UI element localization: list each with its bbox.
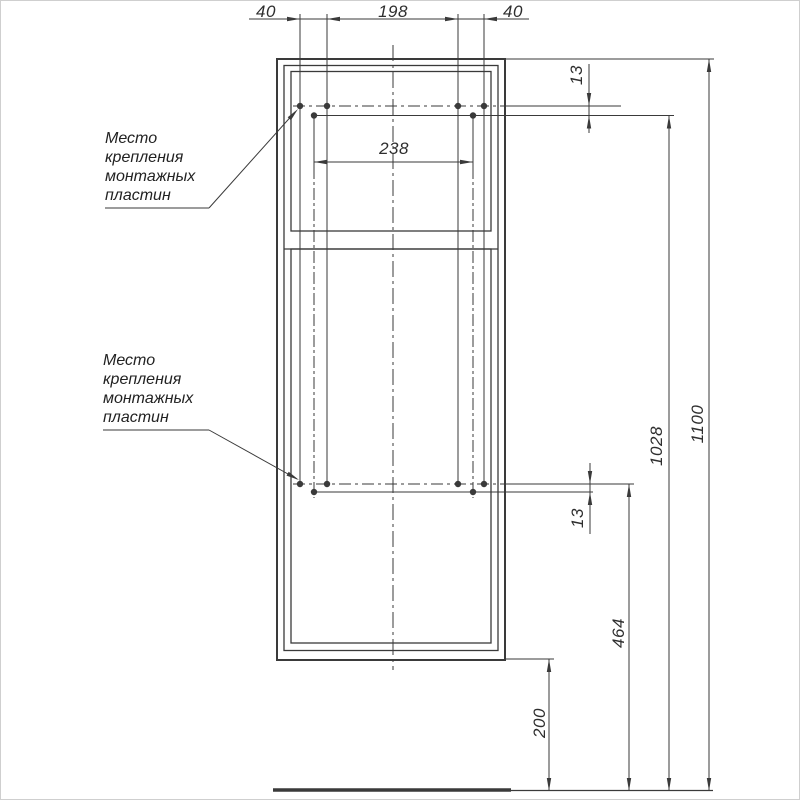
note-line: крепления xyxy=(105,148,195,167)
note-mounting-plates-top: Место крепления монтажных пластин xyxy=(105,129,195,205)
note-line: монтажных xyxy=(103,389,193,408)
plate-span-dimension xyxy=(314,116,473,499)
note-line: Место xyxy=(103,351,193,370)
dim-label-40-right: 40 xyxy=(491,2,535,22)
dim-label-13-bottom: 13 xyxy=(568,488,588,548)
dimension-1028 xyxy=(667,116,671,792)
dimension-1100 xyxy=(506,59,714,791)
offset-13-top xyxy=(587,64,591,133)
offset-13-bottom xyxy=(588,463,592,534)
dim-label-1100: 1100 xyxy=(688,394,708,454)
dim-label-464: 464 xyxy=(609,603,629,663)
note-mounting-plates-bottom: Место крепления монтажных пластин xyxy=(103,351,193,427)
dim-label-40-left: 40 xyxy=(244,2,288,22)
dim-label-198: 198 xyxy=(368,2,418,22)
dim-label-238: 238 xyxy=(369,139,419,159)
leader-bottom xyxy=(103,430,299,480)
dim-label-13-top: 13 xyxy=(567,45,587,105)
technical-drawing-sheet: 40 198 40 238 13 13 1028 1100 464 200 Ме… xyxy=(0,0,800,800)
note-line: пластин xyxy=(103,408,193,427)
note-line: пластин xyxy=(105,186,195,205)
floor-line xyxy=(273,790,713,791)
note-line: монтажных xyxy=(105,167,195,186)
note-line: крепления xyxy=(103,370,193,389)
dim-label-200: 200 xyxy=(530,693,550,753)
dim-label-1028: 1028 xyxy=(647,416,667,476)
note-line: Место xyxy=(105,129,195,148)
